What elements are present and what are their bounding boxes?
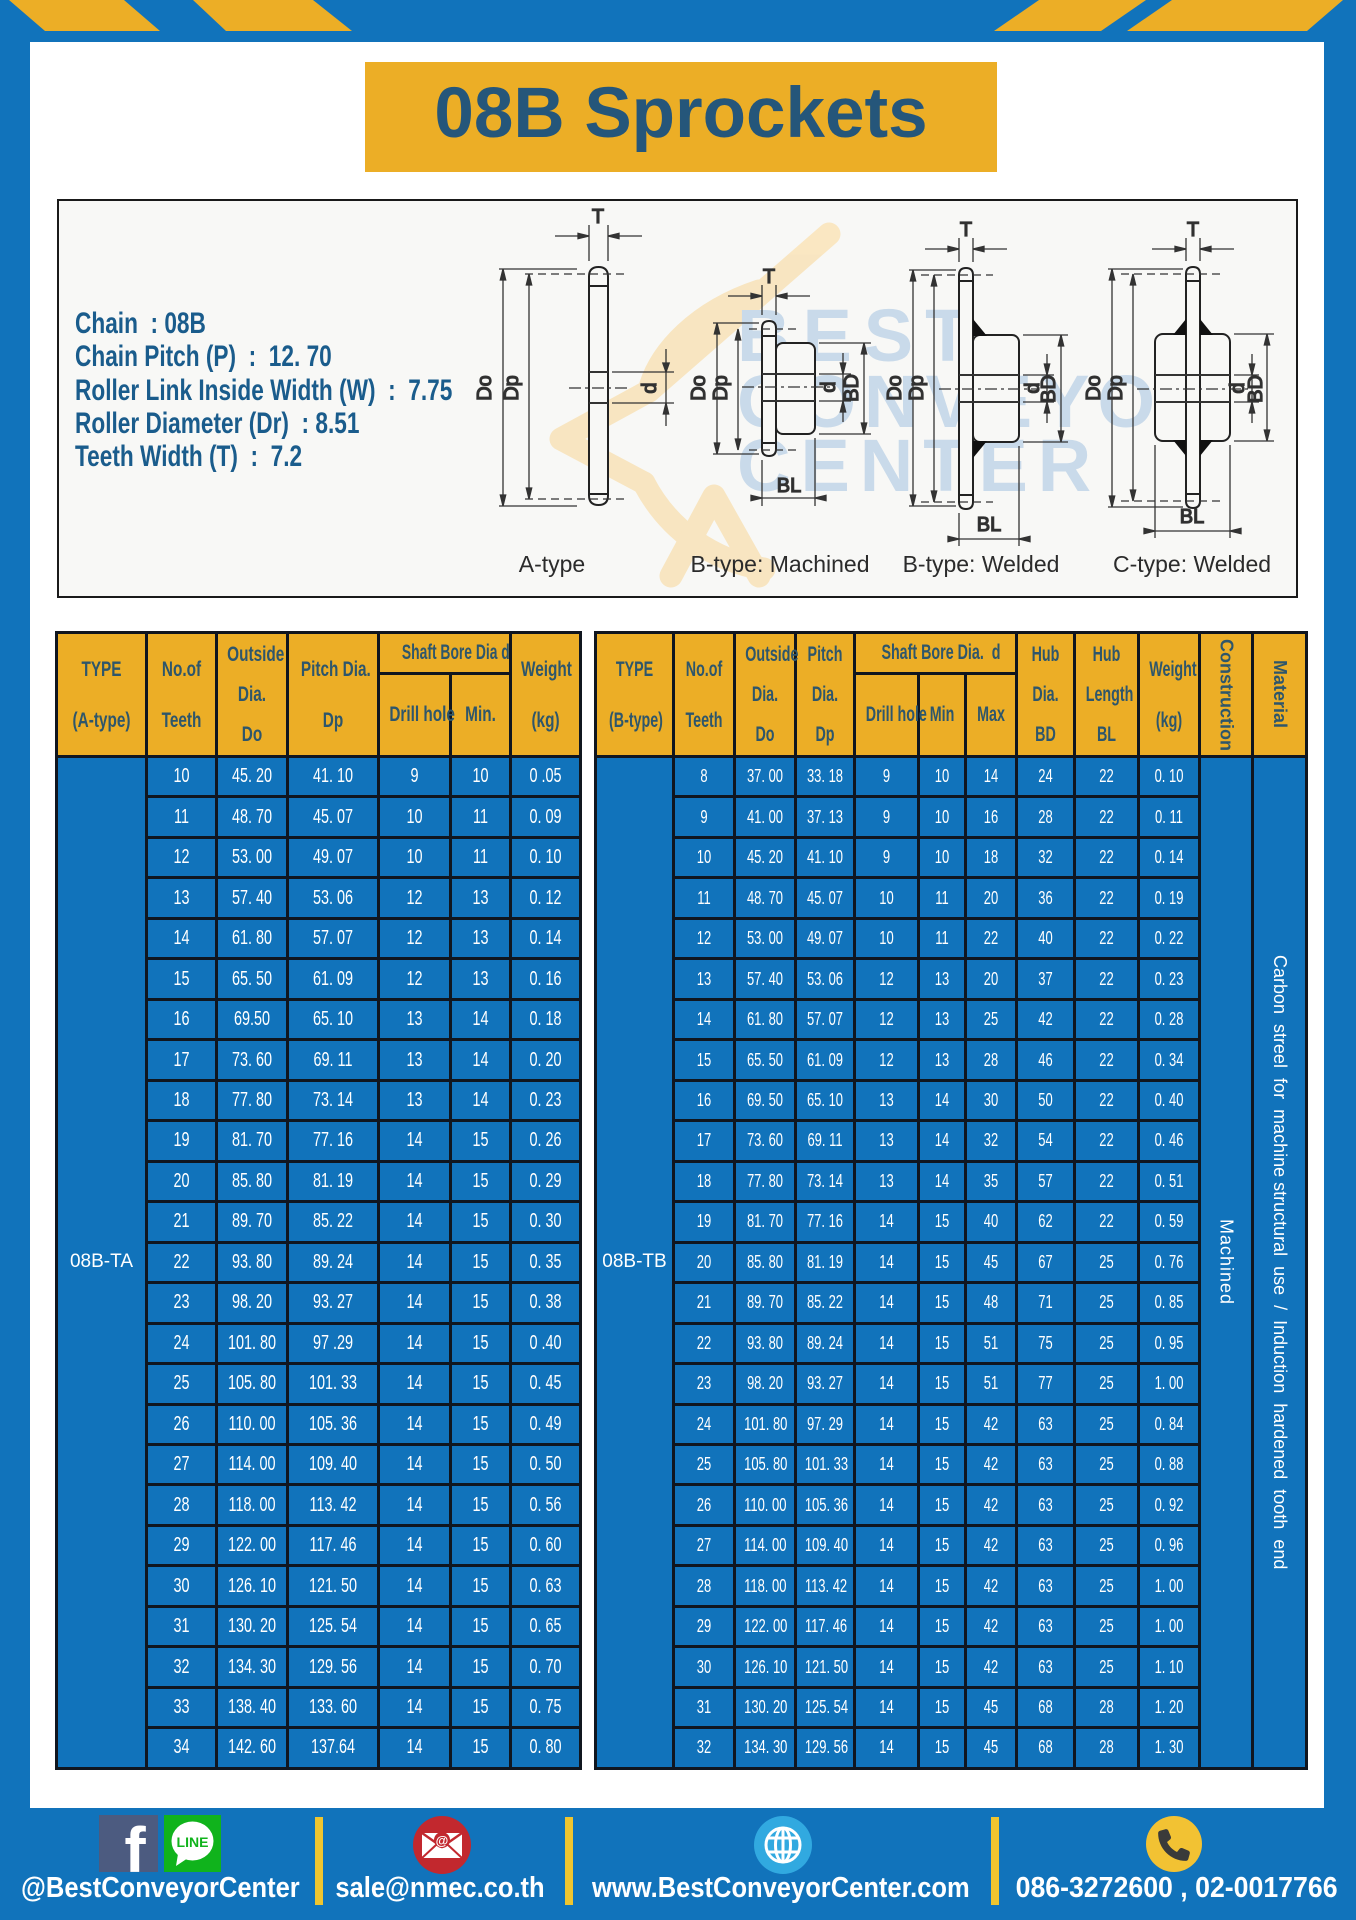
svg-text:Do: Do	[1083, 375, 1105, 401]
svg-text:T: T	[592, 206, 604, 228]
svg-text:Dp: Dp	[710, 375, 732, 401]
svg-text:LINE: LINE	[177, 1834, 209, 1850]
svg-text:Do: Do	[474, 375, 496, 401]
svg-text:BL: BL	[977, 514, 1001, 536]
svg-text:T: T	[763, 266, 775, 288]
svg-text:Do: Do	[884, 375, 906, 401]
svg-text:Dp: Dp	[501, 375, 523, 401]
svg-text:d: d	[818, 381, 840, 392]
svg-text:T: T	[960, 219, 972, 241]
svg-text:T: T	[1187, 219, 1199, 241]
svg-text:Dp: Dp	[1105, 375, 1127, 401]
svg-text:B-type: Machined: B-type: Machined	[691, 551, 870, 577]
svg-text:@: @	[436, 1833, 449, 1848]
svg-text:A-type: A-type	[519, 551, 585, 577]
svg-text:BD: BD	[1038, 375, 1060, 403]
svg-text:B-type: Welded: B-type: Welded	[903, 551, 1060, 577]
svg-text:Dp: Dp	[906, 375, 928, 401]
svg-text:BL: BL	[1180, 506, 1204, 528]
svg-text:BD: BD	[841, 374, 863, 402]
svg-text:d: d	[639, 382, 661, 393]
svg-text:Do: Do	[688, 375, 710, 401]
svg-text:BL: BL	[777, 475, 801, 497]
svg-text:BD: BD	[1245, 375, 1267, 403]
svg-text:C-type: Welded: C-type: Welded	[1113, 551, 1271, 577]
svg-text:f: f	[124, 1814, 146, 1880]
